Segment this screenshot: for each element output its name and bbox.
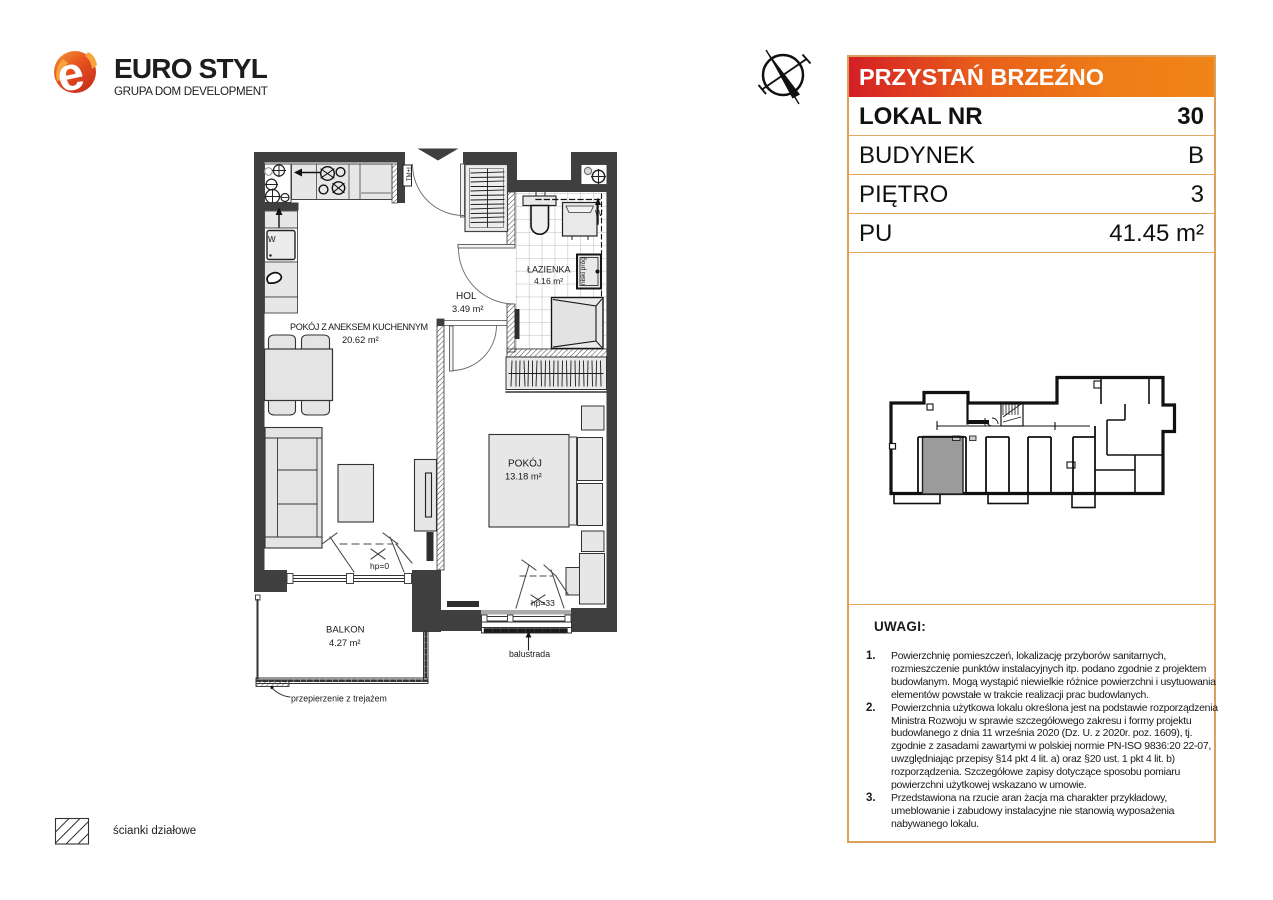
svg-text:ŁAZIENKA: ŁAZIENKA — [527, 265, 571, 275]
svg-text:TM+I: TM+I — [407, 167, 413, 181]
svg-text:20.62 m²: 20.62 m² — [342, 335, 379, 345]
svg-text:niski próg: niski próg — [580, 257, 587, 285]
svg-text:W: W — [268, 235, 276, 244]
svg-text:hp=0: hp=0 — [370, 561, 389, 571]
svg-text:13.18 m²: 13.18 m² — [505, 472, 542, 482]
svg-text:HOL: HOL — [456, 291, 477, 302]
svg-text:przepierzenie z trejażem: przepierzenie z trejażem — [291, 694, 387, 704]
svg-text:4.27 m²: 4.27 m² — [329, 638, 361, 648]
svg-text:POKÓJ Z ANEKSEM KUCHENNYM: POKÓJ Z ANEKSEM KUCHENNYM — [290, 322, 428, 332]
svg-text:POKÓJ: POKÓJ — [508, 457, 542, 470]
svg-text:hp=33: hp=33 — [531, 598, 555, 608]
svg-text:4.16 m²: 4.16 m² — [534, 276, 563, 286]
svg-text:BALKON: BALKON — [326, 625, 365, 636]
svg-text:balustrada: balustrada — [509, 649, 550, 659]
svg-text:W: W — [595, 209, 603, 218]
svg-text:3.49 m²: 3.49 m² — [452, 304, 484, 314]
